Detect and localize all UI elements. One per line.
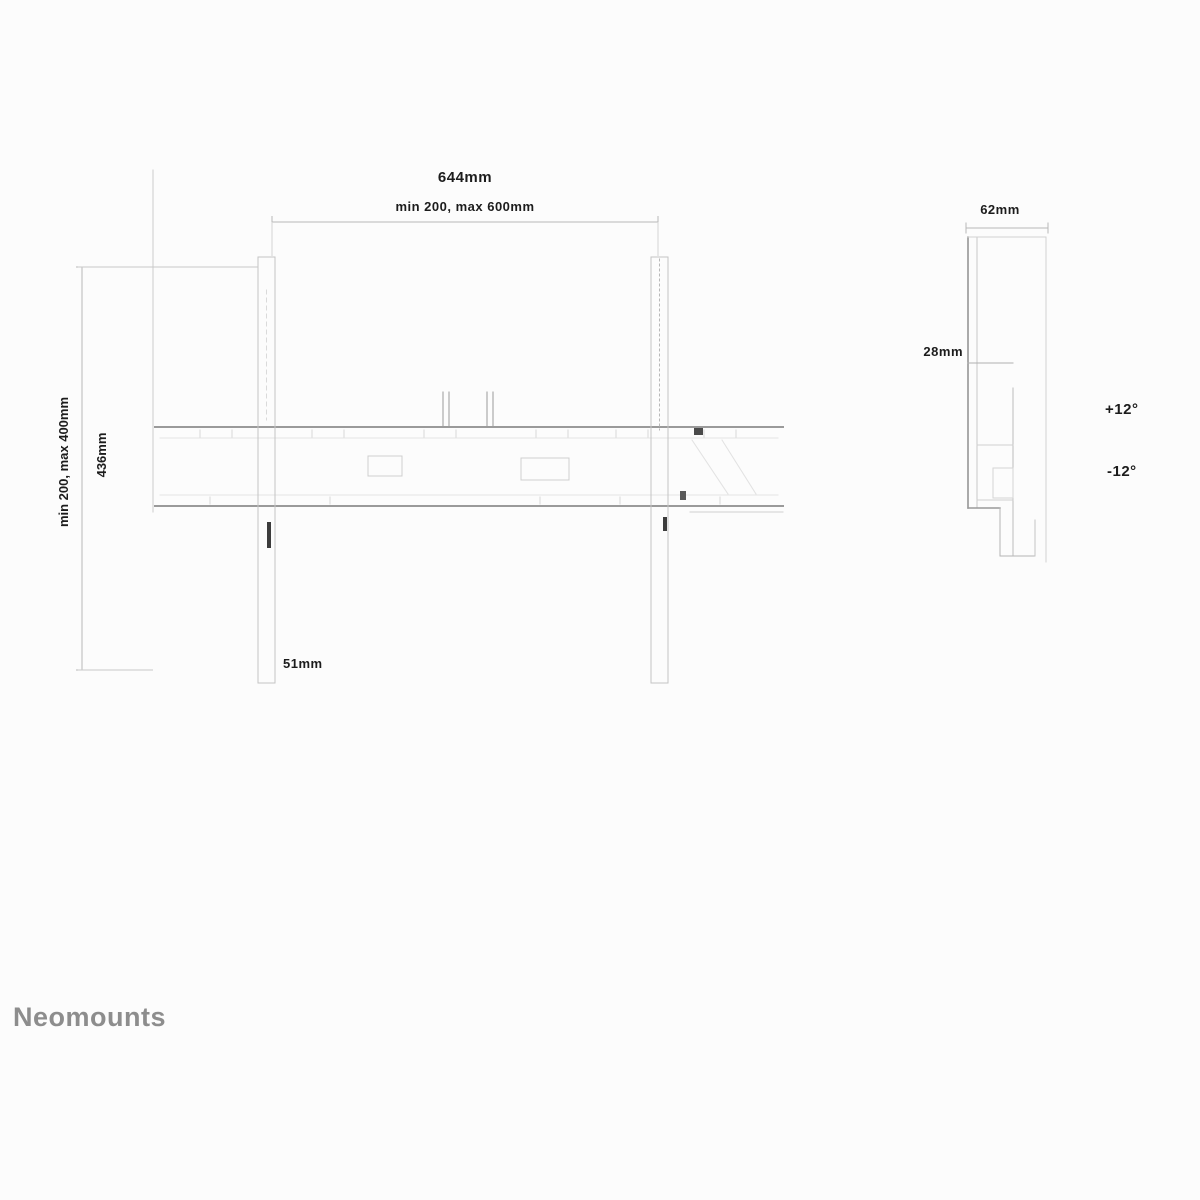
- wall-mount-technical-drawing: [0, 0, 1200, 1200]
- rail-tick-marks: [200, 430, 736, 504]
- front-bracket-height-label: 436mm: [94, 410, 112, 500]
- side-wall-distance-label: 28mm: [873, 344, 963, 359]
- front-width-dimension-label: 644mm: [395, 169, 535, 186]
- brand-logo-text: Neomounts: [13, 1002, 166, 1033]
- front-view: [153, 170, 783, 683]
- mounting-studs: [443, 392, 493, 427]
- side-view: [966, 223, 1048, 562]
- front-vesa-width-range-label: min 200, max 600mm: [345, 199, 585, 214]
- side-depth-dimension-label: 62mm: [950, 202, 1050, 217]
- left-bracket-strip: [258, 257, 275, 683]
- front-vesa-height-range-label: min 200, max 400mm: [56, 352, 74, 572]
- tilt-down-angle-label: -12°: [1107, 463, 1137, 480]
- technical-drawing-page: 644mm min 200, max 600mm min 200, max 40…: [0, 0, 1200, 1200]
- front-dimension-lines: [76, 216, 658, 670]
- tilt-up-angle-label: +12°: [1105, 401, 1138, 418]
- front-bracket-width-label: 51mm: [283, 656, 323, 671]
